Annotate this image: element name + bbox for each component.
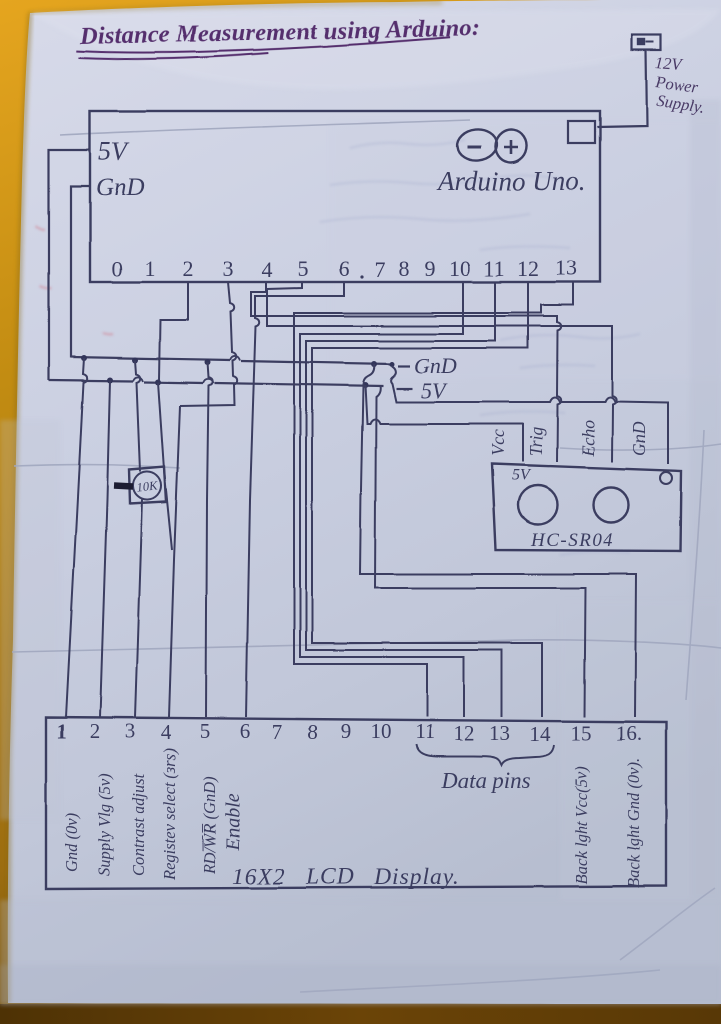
svg-text:Data pins: Data pins <box>440 768 531 793</box>
svg-text:12: 12 <box>517 256 539 281</box>
svg-text:16.: 16. <box>616 721 642 745</box>
svg-text:0: 0 <box>112 256 123 281</box>
svg-text:HC-SR04: HC-SR04 <box>530 530 614 551</box>
svg-text:13: 13 <box>490 721 511 745</box>
svg-text:12: 12 <box>454 721 475 745</box>
svg-text:Vcc: Vcc <box>488 430 508 456</box>
svg-text:Back lght Vcc(5v): Back lght Vcc(5v) <box>572 766 591 884</box>
svg-text:8: 8 <box>308 720 319 744</box>
svg-text:Contrast adjust: Contrast adjust <box>129 773 148 876</box>
svg-text:6: 6 <box>240 719 251 743</box>
svg-text:16X2 LCD Display.: 16X2 LCD Display. <box>232 864 460 890</box>
svg-text:5: 5 <box>298 256 309 281</box>
svg-text:Trig: Trig <box>526 427 546 456</box>
svg-text:5V: 5V <box>512 467 532 484</box>
svg-text:5V: 5V <box>421 378 448 403</box>
svg-text:10: 10 <box>449 256 471 281</box>
svg-text:GnD: GnD <box>414 353 457 378</box>
svg-text:9: 9 <box>425 256 436 281</box>
svg-text:12V: 12V <box>655 53 685 74</box>
svg-text:9: 9 <box>341 719 352 743</box>
svg-text:5: 5 <box>200 719 211 743</box>
svg-text:6: 6 <box>339 256 350 281</box>
svg-text:GnD: GnD <box>629 422 649 456</box>
svg-text:14: 14 <box>530 722 552 746</box>
svg-text:Echo: Echo <box>578 420 598 457</box>
svg-text:4: 4 <box>161 720 172 744</box>
svg-text:Enable: Enable <box>222 793 244 851</box>
svg-text:Arduino Uno.: Arduino Uno. <box>436 166 586 196</box>
svg-text:GnD: GnD <box>96 174 145 201</box>
svg-text:1: 1 <box>57 719 68 743</box>
svg-text:13: 13 <box>555 255 577 280</box>
svg-text:2: 2 <box>90 719 101 743</box>
svg-text:8: 8 <box>399 256 410 281</box>
svg-text:2: 2 <box>183 256 194 281</box>
svg-text:Supply Vlg (5v): Supply Vlg (5v) <box>95 773 114 876</box>
svg-text:10K: 10K <box>136 479 159 495</box>
svg-text:7: 7 <box>272 720 283 744</box>
svg-text:3: 3 <box>125 719 136 743</box>
svg-text:3: 3 <box>223 256 234 281</box>
svg-text:4: 4 <box>262 257 273 282</box>
svg-text:11: 11 <box>415 719 435 743</box>
svg-text:Gnd (0v): Gnd (0v) <box>62 813 81 872</box>
svg-text:Back lght Gnd (0v).: Back lght Gnd (0v). <box>624 758 643 888</box>
svg-text:5V: 5V <box>98 137 130 166</box>
svg-text:15: 15 <box>571 721 592 745</box>
svg-text:10: 10 <box>371 719 392 743</box>
svg-text:Registev select (зrs): Registev select (зrs) <box>160 748 179 881</box>
svg-text:11: 11 <box>483 256 504 281</box>
svg-text:1: 1 <box>145 256 156 281</box>
svg-text:7: 7 <box>375 257 386 282</box>
svg-text:RD/̅W̅R̅ (GnD): RD/̅W̅R̅ (GnD) <box>200 776 219 875</box>
